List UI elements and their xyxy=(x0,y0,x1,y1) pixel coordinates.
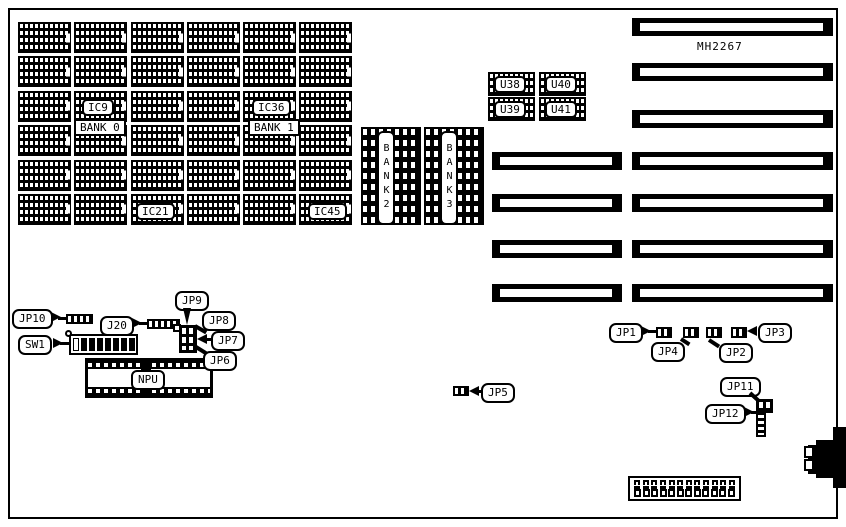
dip-switch-cell xyxy=(129,338,135,351)
power-pin-top xyxy=(669,480,675,485)
isa-slot-short-2 xyxy=(492,194,622,212)
memory-chip xyxy=(299,125,352,156)
motherboard-diagram: IC9 BANK 0 IC36 BANK 1 IC21 IC45 BANK2 B… xyxy=(0,0,846,527)
dip-switch-cell xyxy=(97,338,103,351)
power-pin-top xyxy=(729,480,735,485)
isa-slot-long-5 xyxy=(632,194,833,212)
callout-jp5: JP5 xyxy=(481,383,515,403)
label-ic45: IC45 xyxy=(308,203,347,220)
dip-switch-cell-off xyxy=(73,338,79,351)
dip-switch-cell xyxy=(105,338,111,351)
connector-jp3 xyxy=(731,327,747,338)
callout-jp4: JP4 xyxy=(651,342,685,362)
memory-chip xyxy=(74,194,127,225)
label-ic36: IC36 xyxy=(252,99,291,116)
memory-chip xyxy=(243,22,296,53)
power-pin-top xyxy=(712,480,718,485)
isa-slot-long-4 xyxy=(632,152,833,170)
memory-chip xyxy=(243,160,296,191)
memory-chip xyxy=(131,56,184,87)
memory-chip xyxy=(131,91,184,122)
memory-chip xyxy=(243,194,296,225)
memory-chip xyxy=(18,22,71,53)
callout-pointer xyxy=(139,322,148,325)
power-pin-socket xyxy=(711,489,718,497)
keyboard-connector-notch xyxy=(804,459,814,471)
memory-chip xyxy=(74,160,127,191)
label-u40: U40 xyxy=(545,76,577,93)
jumper-pin-nub xyxy=(173,324,181,332)
isa-slot-short-4 xyxy=(492,284,622,302)
power-pin-socket xyxy=(719,489,726,497)
isa-slot-long-7 xyxy=(632,284,833,302)
callout-jp9: JP9 xyxy=(175,291,209,311)
memory-chip xyxy=(187,194,240,225)
memory-chip xyxy=(131,22,184,53)
isa-slot-long-1 xyxy=(632,18,833,36)
power-pin-socket xyxy=(660,489,667,497)
power-pin-socket xyxy=(668,489,675,497)
bank3-label: BANK3 xyxy=(440,131,458,225)
callout-jp7: JP7 xyxy=(211,331,245,351)
callout-pointer xyxy=(205,338,213,341)
memory-chip xyxy=(187,160,240,191)
power-pin-top xyxy=(660,480,666,485)
power-connector xyxy=(628,476,741,501)
power-pin-socket xyxy=(634,489,641,497)
power-pin-socket xyxy=(728,489,735,497)
callout-jp10: JP10 xyxy=(12,309,53,329)
memory-chip xyxy=(187,91,240,122)
isa-slot-long-2 xyxy=(632,63,833,81)
label-u41: U41 xyxy=(545,101,577,118)
dip-switch-cell xyxy=(113,338,119,351)
dip-switch-cell xyxy=(89,338,95,351)
connector-jp2 xyxy=(706,327,722,338)
callout-sw1: SW1 xyxy=(18,335,52,355)
dip-switch-cell xyxy=(121,338,127,351)
isa-slot-short-1 xyxy=(492,152,622,170)
memory-chip xyxy=(187,125,240,156)
memory-chip xyxy=(299,160,352,191)
connector-jp10 xyxy=(66,314,93,324)
keyboard-connector xyxy=(816,440,846,478)
board-name-label: MH2267 xyxy=(697,40,743,53)
power-pin-socket xyxy=(685,489,692,497)
power-pin-socket xyxy=(702,489,709,497)
callout-jp6: JP6 xyxy=(203,351,237,371)
connector-jp5 xyxy=(453,386,469,396)
label-u38: U38 xyxy=(494,76,526,93)
callout-jp3: JP3 xyxy=(758,323,792,343)
callout-pointer xyxy=(648,330,657,333)
power-pin-socket xyxy=(643,489,650,497)
keyboard-connector-notch xyxy=(804,446,814,458)
power-pin-top xyxy=(720,480,726,485)
power-row-bot xyxy=(634,489,735,497)
power-pin-top xyxy=(694,480,700,485)
label-bank1: BANK 1 xyxy=(248,119,300,136)
bank2-label: BANK2 xyxy=(377,131,395,225)
memory-chip xyxy=(18,125,71,156)
dip-switch-cell xyxy=(81,338,87,351)
memory-chip xyxy=(299,91,352,122)
label-bank0: BANK 0 xyxy=(74,119,126,136)
power-pin-top xyxy=(677,480,683,485)
label-ic9: IC9 xyxy=(82,99,114,116)
callout-jp8: JP8 xyxy=(202,311,236,331)
memory-chip xyxy=(131,125,184,156)
memory-chip xyxy=(299,22,352,53)
callout-pointer xyxy=(60,342,70,345)
isa-slot-long-3 xyxy=(632,110,833,128)
callout-pointer xyxy=(58,317,67,320)
callout-pointer xyxy=(747,326,757,336)
label-ic21: IC21 xyxy=(136,203,175,220)
power-pin-top xyxy=(703,480,709,485)
callout-pointer xyxy=(183,308,191,325)
memory-chip xyxy=(131,160,184,191)
callout-jp1: JP1 xyxy=(609,323,643,343)
memory-chip xyxy=(187,56,240,87)
isa-slot-short-3 xyxy=(492,240,622,258)
power-pin-socket xyxy=(694,489,701,497)
memory-chip xyxy=(243,56,296,87)
connector-jp4 xyxy=(683,327,699,338)
memory-chip xyxy=(74,22,127,53)
memory-chip xyxy=(18,91,71,122)
callout-jp12: JP12 xyxy=(705,404,746,424)
power-pin-socket xyxy=(677,489,684,497)
power-pin-top xyxy=(651,480,657,485)
sw1-dip-switch xyxy=(69,334,138,355)
callout-jp2: JP2 xyxy=(719,343,753,363)
connector-jp1 xyxy=(656,327,672,338)
memory-chip xyxy=(74,56,127,87)
memory-chip xyxy=(18,160,71,191)
memory-chip xyxy=(18,194,71,225)
callout-j20: J20 xyxy=(100,316,134,336)
callout-pointer xyxy=(751,411,757,414)
sw1-pin1-dot xyxy=(65,330,72,337)
power-row-top xyxy=(634,480,735,485)
isa-slot-long-6 xyxy=(632,240,833,258)
memory-chip xyxy=(299,56,352,87)
power-pin-socket xyxy=(651,489,658,497)
power-pin-top xyxy=(643,480,649,485)
callout-pointer xyxy=(476,390,483,393)
power-pin-top xyxy=(686,480,692,485)
memory-chip xyxy=(187,22,240,53)
memory-grid xyxy=(18,22,352,225)
npu-label: NPU xyxy=(131,370,165,390)
power-pin-top xyxy=(634,480,640,485)
label-u39: U39 xyxy=(494,101,526,118)
memory-chip xyxy=(18,56,71,87)
jp12-jumper-strip xyxy=(756,413,766,437)
